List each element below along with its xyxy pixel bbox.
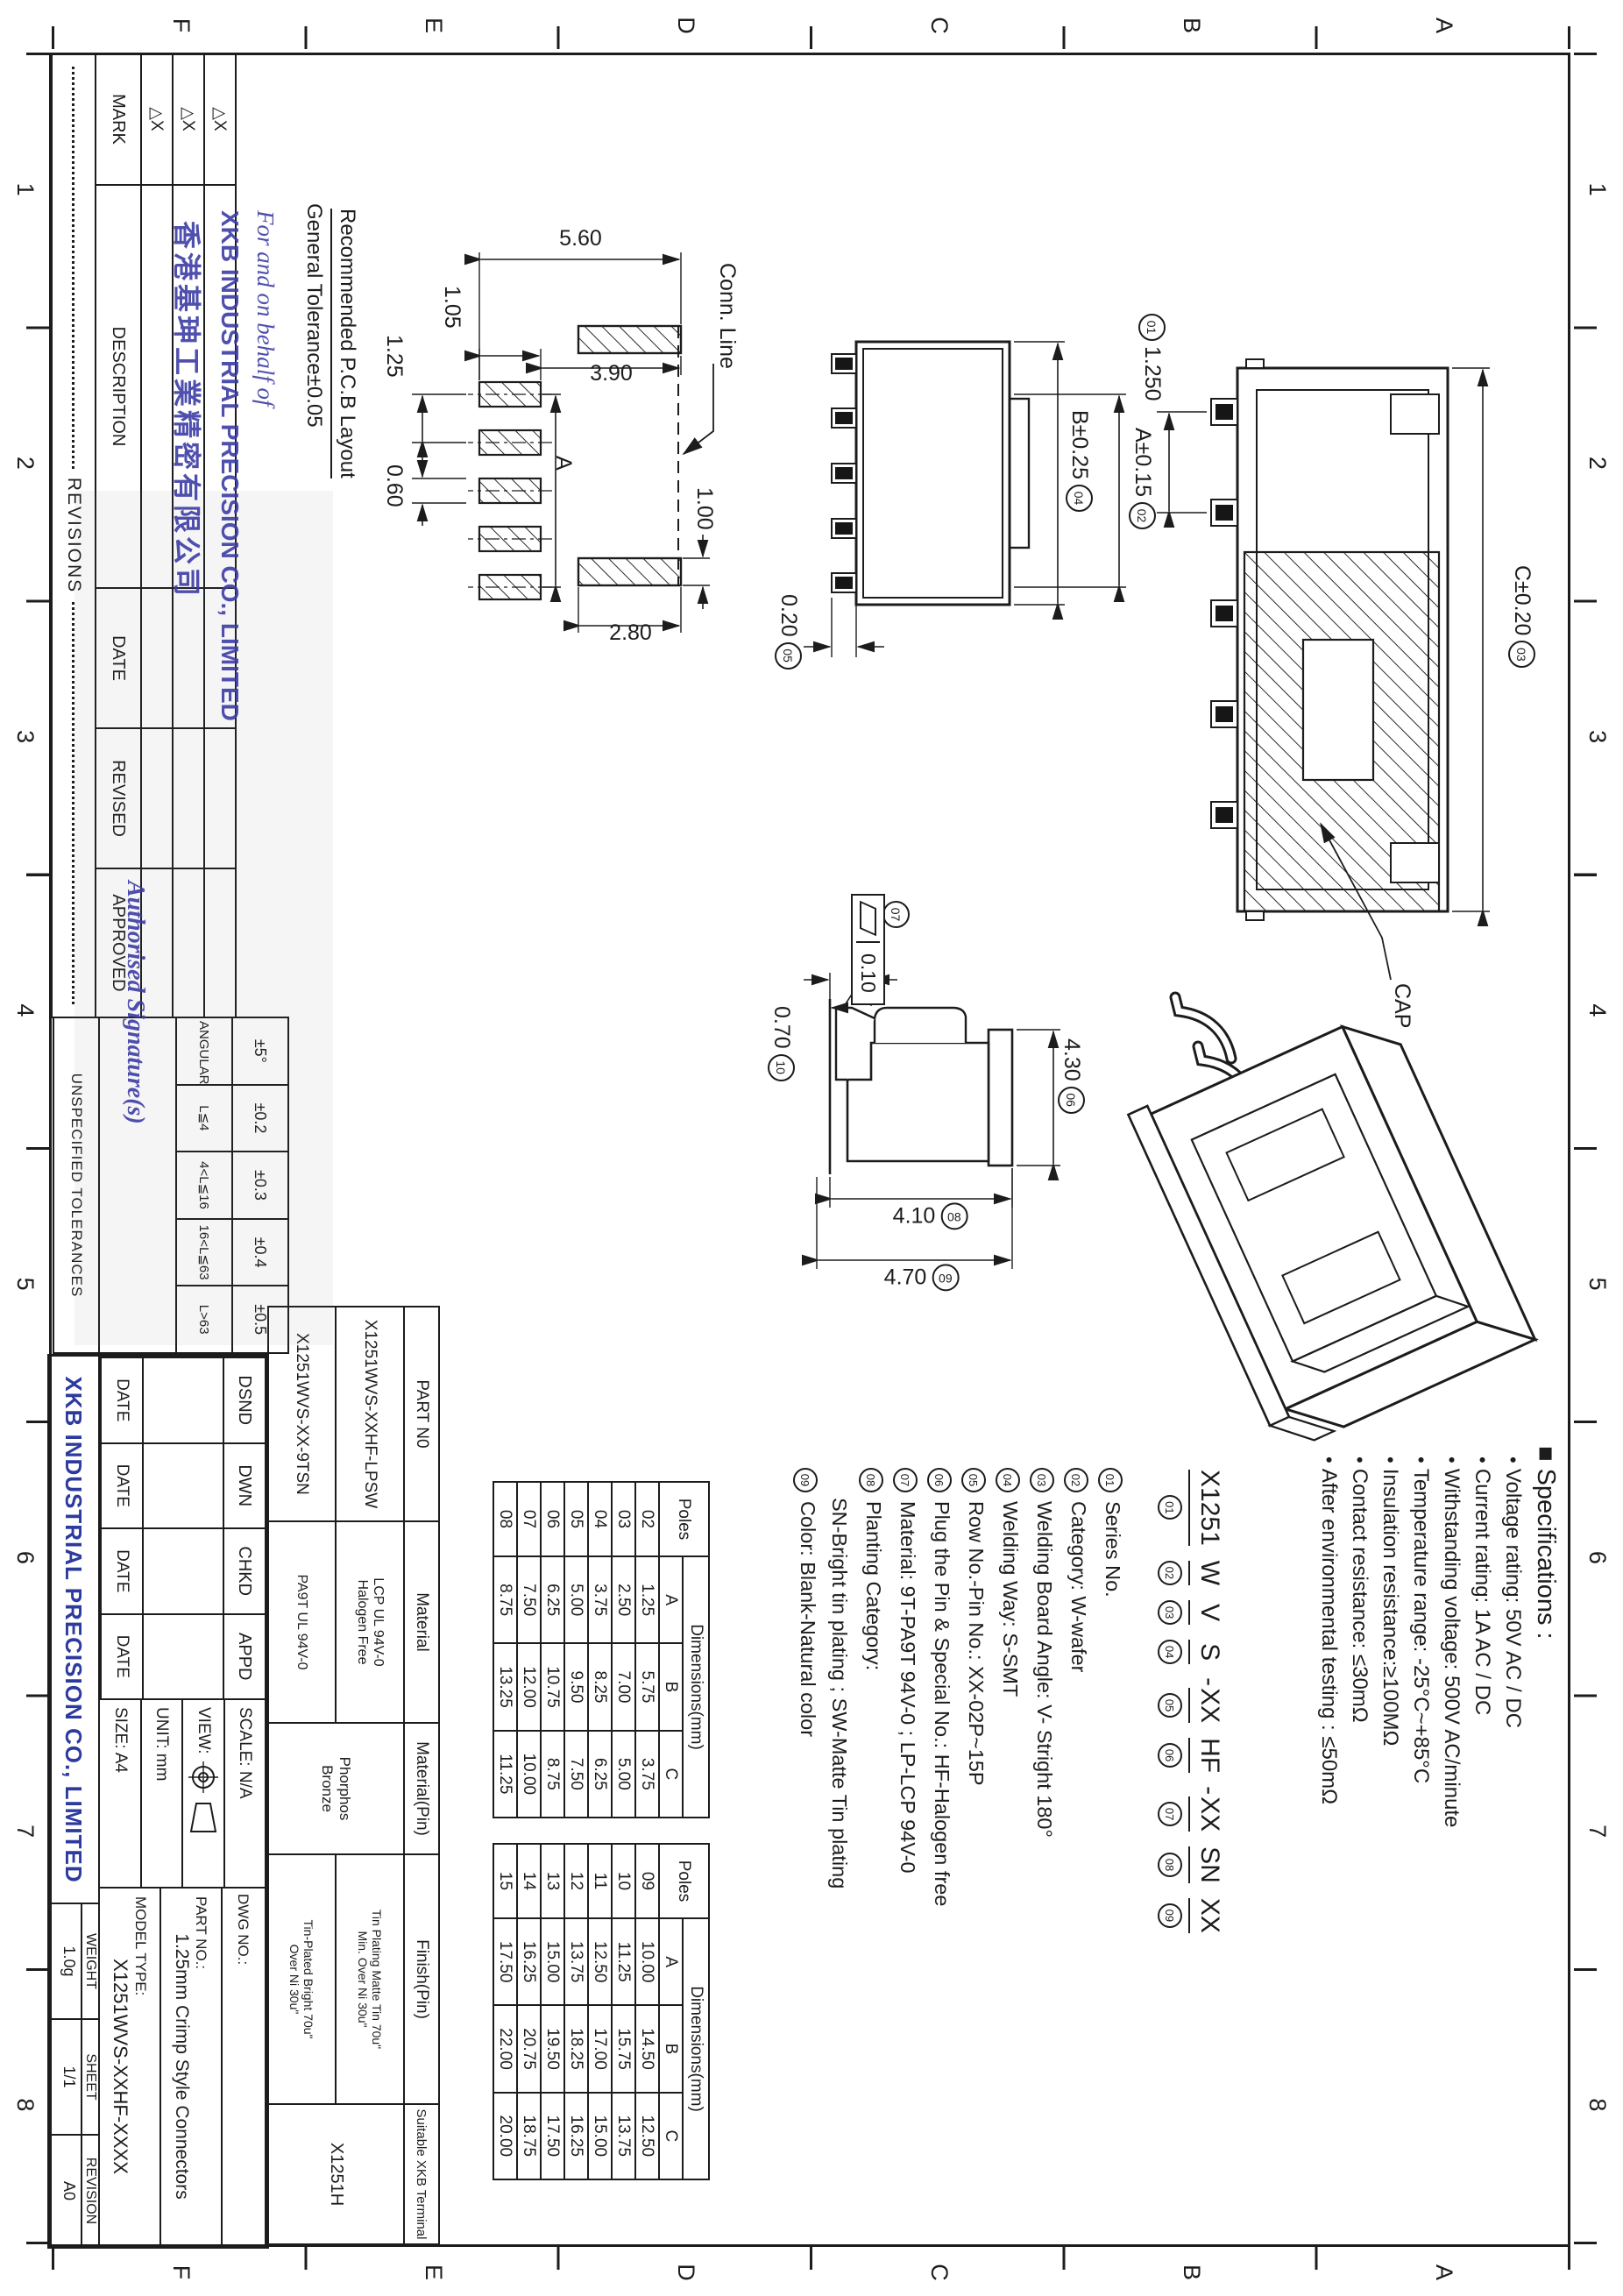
dim-A: A — [550, 456, 576, 471]
drawing-sheet: 12345678 12345678 ABCDEF ABCDEF — [0, 0, 1623, 2296]
table-row: 021.25 5.753.75 — [635, 1482, 659, 1818]
poles-header: Poles — [659, 1844, 709, 1918]
dim-col-header: B — [659, 2005, 683, 2092]
model-type-value: X1251WVS-XXHF-XXXX — [109, 1891, 131, 2242]
signature-block: DSND DWN CHKD APPD DATE DATE DATE DATE — [100, 1357, 266, 1700]
note-item: 02 Category: W-wafer — [1064, 1468, 1090, 2239]
view-label: VIEW: — [195, 1707, 213, 1754]
dim-col-header: A — [659, 1556, 683, 1643]
table-row: 1315.00 19.5017.50 — [541, 1844, 564, 2179]
zone-label: 6 — [11, 1421, 40, 1694]
order-code-segment: XX 09 — [1158, 1896, 1224, 1933]
zone-label: 4 — [1583, 874, 1612, 1147]
date-cell: DATE — [101, 1357, 143, 1443]
chkd-cell: CHKD — [223, 1528, 266, 1614]
terminal-value: X1251H — [268, 2104, 404, 2244]
dim-105: 1.05 — [439, 286, 464, 329]
table-row: 032.50 7.005.00 — [612, 1482, 635, 1818]
note-item: 05 Row No.-Pin No.: XX-02P~15P — [961, 1468, 988, 2239]
table-row: 043.75 8.256.25 — [588, 1482, 612, 1818]
spec-item: Contact resistance: ≤30mΩ — [1347, 1456, 1371, 2042]
note-item: 04 Welding Way: S-SMT — [996, 1468, 1022, 2239]
order-code-segment: SN 08 — [1158, 1845, 1224, 1883]
note-balloon: 07 — [893, 1468, 918, 1492]
spec-item: Current rating: 1A AC / DC — [1470, 1456, 1494, 2042]
dim-a: A±0.15 02 — [1129, 428, 1156, 529]
stamp-line2: XKB INDUSTRIAL PRECISION CO., LIMITED — [216, 210, 244, 721]
specifications: ■ Specifications : Voltage rating: 50V A… — [1316, 1446, 1560, 2042]
order-code-segment: V 03 — [1158, 1598, 1224, 1625]
zone-numbers-top: 12345678 — [1583, 53, 1612, 2242]
note-text: Color: Blank-Natural color — [796, 1501, 819, 1737]
part-title: 1.25mm Crimp Style Connectors — [171, 1891, 192, 2242]
code-text: HF — [1194, 1738, 1224, 1773]
zone-label: 7 — [1583, 1695, 1612, 1968]
zone-label: 2 — [1583, 326, 1612, 599]
note-item: 01 Series No. — [1098, 1468, 1124, 2239]
revision-mark: △X — [204, 53, 236, 185]
scale-cell: SCALE: N/A — [224, 1699, 266, 1888]
order-code: X1251 01 W 02 V 03 S 04 - XX — [1158, 1468, 1224, 1946]
balloon-07: 07 — [882, 901, 910, 928]
appd-cell: APPD — [223, 1614, 266, 1700]
poles-header: Poles — [659, 1482, 709, 1556]
code-text: X1251 — [1194, 1470, 1224, 1546]
table-row: 1112.50 17.0015.00 — [588, 1844, 612, 2179]
zone-letters-right: ABCDEF — [54, 2257, 1570, 2287]
date-cell: DATE — [101, 1443, 143, 1529]
zone-label: E — [307, 11, 559, 40]
note-balloon: 09 — [793, 1468, 818, 1492]
title-block: DSND DWN CHKD APPD DATE DATE DATE DATE S… — [47, 1354, 269, 2249]
zone-label: 3 — [11, 600, 40, 874]
zone-label: 5 — [11, 1147, 40, 1421]
note-item: 03 Welding Board Angle: V- Stright 180° — [1030, 1468, 1056, 2239]
table-row: X1251WVS-XXHF-LPSW LCP UL 94V-0 Halogen … — [336, 1307, 404, 2244]
zone-label: D — [560, 2257, 812, 2287]
drawing-page: 12345678 12345678 ABCDEF ABCDEF — [0, 0, 1623, 2296]
spec-item: Voltage rating: 50V AC / DC — [1500, 1456, 1525, 2042]
dim-col-header: C — [659, 1731, 683, 1818]
code-text: XX — [1194, 1796, 1224, 1832]
dimensions-header: Dimensions(mm) — [683, 1918, 709, 2179]
fcf-balloon: 07 — [882, 901, 910, 928]
note-balloon: 02 — [1064, 1468, 1088, 1492]
code-balloon: 06 — [1158, 1743, 1182, 1768]
note-text: Row No.-Pin No.: XX-02P~15P — [964, 1501, 988, 1786]
revision-mark: △X — [141, 53, 173, 185]
zone-label: E — [307, 2257, 559, 2287]
code-balloon: 08 — [1158, 1853, 1182, 1877]
table-row: 088.75 13.2511.25 — [493, 1482, 517, 1818]
dim-070: 0.70 10 — [768, 1006, 795, 1081]
zone-label: F — [54, 2257, 307, 2287]
spec-item: Withstanding voltage: 500V AC/minute — [1439, 1456, 1464, 2042]
dim-col-header: C — [659, 2093, 683, 2179]
table-row: 1416.25 20.7518.75 — [517, 1844, 541, 2179]
code-text: XX — [1194, 1688, 1224, 1723]
code-balloon: 03 — [1158, 1600, 1182, 1625]
zone-label: C — [812, 2257, 1065, 2287]
terminal-header: Suitable XKB Terminal — [404, 2104, 439, 2244]
poles-table-2: Poles Dimensions(mm) ABC 0910.00 14.5012… — [493, 1843, 710, 2180]
balloon-03: 03 — [1508, 641, 1535, 668]
info-block: SCALE: N/A VIEW: UNIT: mm SIZE: A4 — [98, 1698, 266, 1889]
spec-item: Temperature range: -25°C~+85°C — [1408, 1456, 1433, 2042]
dsnd-cell: DSND — [223, 1357, 266, 1443]
model-type-label: MODEL TYPE: — [131, 1891, 151, 2242]
zone-label: 6 — [1583, 1421, 1612, 1694]
code-balloon: 01 — [1158, 1495, 1182, 1520]
pcb-pad-right — [578, 558, 681, 585]
code-balloon: 05 — [1158, 1693, 1182, 1718]
third-angle-projection-icon — [186, 1758, 221, 1839]
isometric-view — [1110, 911, 1575, 1472]
spec-item: After environmental testing : ≤50mΩ — [1316, 1456, 1341, 2042]
dim-020: 0.20 05 — [775, 594, 802, 670]
zone-label: 4 — [11, 874, 40, 1147]
balloon-04: 04 — [1066, 485, 1093, 512]
zone-label: 7 — [11, 1695, 40, 1968]
zone-label: F — [54, 11, 307, 40]
pcb-caption-line1: Recommended P.C.B Layout — [330, 209, 359, 478]
dim-390: 3.90 — [590, 361, 633, 386]
order-code-segment: - XX 07 — [1158, 1786, 1224, 1832]
code-balloon: 04 — [1158, 1640, 1182, 1664]
zone-label: 8 — [11, 1968, 40, 2242]
note-text: Series No. — [1101, 1501, 1124, 1598]
note-text: SN-Bright tin plating ; SW-Matte Tin pla… — [827, 1498, 851, 1889]
note-balloon: 05 — [961, 1468, 986, 1492]
zone-label: A — [1318, 2257, 1570, 2287]
company-name: XKB INDUSTRIAL PRECISION CO., LIMITED — [60, 1376, 87, 1882]
finish-pin-header: Finish(Pin) — [404, 1854, 439, 2104]
code-text: S — [1194, 1643, 1224, 1661]
dim-060: 0.60 — [381, 464, 407, 507]
date-cell: DATE — [101, 1528, 143, 1614]
zone-label: 8 — [1583, 1968, 1612, 2242]
stamp-backdrop — [74, 491, 333, 1345]
order-code-segment: S 04 — [1158, 1638, 1224, 1664]
note-item: 09 Color: Blank-Natural color — [793, 1468, 819, 2239]
dim-col-header: B — [659, 1643, 683, 1730]
note-text: Material: 9T-PA9T 94V-0 ; LP-LCP 94V-0 — [896, 1501, 919, 1874]
zone-label: B — [1065, 11, 1317, 40]
note-item: 08 Planting Category: — [859, 1468, 885, 2239]
dim-c: C±0.20 03 — [1508, 565, 1535, 668]
table-row: 0910.00 14.5012.50 — [635, 1844, 659, 2179]
code-text: V — [1194, 1604, 1224, 1621]
zone-letters-left: ABCDEF — [54, 11, 1570, 40]
dim-125: 1.25 — [381, 335, 407, 378]
title-block-bottom: XKB INDUSTRIAL PRECISION CO., LIMITED WE… — [48, 1357, 100, 2246]
note-balloon — [828, 1468, 849, 1489]
order-code-segment: W 02 — [1158, 1559, 1224, 1585]
note-balloon: 06 — [927, 1468, 952, 1492]
conn-line-label: Conn. Line — [714, 263, 740, 369]
part-no-label: PART NO.: — [192, 1891, 211, 2242]
order-code-notes: 01 Series No. 02 Category: W-wafer 03 We… — [793, 1468, 1132, 2239]
note-text: Welding Way: S-SMT — [998, 1501, 1022, 1697]
note-text: Category: W-wafer — [1067, 1501, 1090, 1672]
note-balloon: 04 — [996, 1468, 1020, 1492]
balloon-02: 02 — [1129, 502, 1156, 529]
part-table: PART N0 Material Material(Pin) Finish(Pi… — [267, 1306, 440, 2243]
stamp-line1: For and on behalf of — [252, 210, 279, 407]
specifications-list: Voltage rating: 50V AC / DCCurrent ratin… — [1316, 1446, 1525, 2042]
top-view-drawing — [769, 315, 1163, 692]
balloon-08: 08 — [940, 1202, 967, 1229]
table-row: 1213.75 18.2516.25 — [564, 1844, 588, 2179]
pcb-pad-left — [578, 326, 681, 353]
dim-410: 4.10 08 — [893, 1202, 968, 1229]
code-balloon: 09 — [1158, 1903, 1182, 1928]
pcb-layout-view: Conn. Line 5.60 3.90 1.05 A 1.25 0.60 1.… — [282, 202, 755, 701]
material-pin-header: Material(Pin) — [404, 1723, 439, 1854]
model-block: DWG NO.: PART NO.: 1.25mm Crimp Style Co… — [98, 1887, 266, 2246]
table-row: 055.00 9.507.50 — [564, 1482, 588, 1818]
order-code-segment: HF 06 — [1158, 1736, 1224, 1773]
poles-table-1: Poles Dimensions(mm) ABC 021.25 5.753.75… — [493, 1481, 710, 1818]
dim-430: 4.30 06 — [1058, 1038, 1085, 1114]
pcb-caption-line2: General Tolerance±0.05 — [301, 203, 326, 428]
dim-560: 5.60 — [559, 226, 602, 252]
flatness-icon — [860, 901, 876, 936]
zone-label: A — [1318, 11, 1570, 40]
company-cell: XKB INDUSTRIAL PRECISION CO., LIMITED — [48, 1357, 98, 1903]
code-separator: - — [1158, 1677, 1224, 1686]
code-balloon: 07 — [1158, 1802, 1182, 1826]
note-item: SN-Bright tin plating ; SW-Matte Tin pla… — [827, 1468, 851, 2239]
note-item: 07 Material: 9T-PA9T 94V-0 ; LP-LCP 94V-… — [893, 1468, 919, 2239]
code-text: SN — [1194, 1846, 1224, 1883]
zone-label: 1 — [1583, 53, 1612, 326]
dim-470: 4.70 09 — [884, 1264, 960, 1291]
unit-cell: UNIT: mm — [141, 1699, 182, 1888]
zone-label: B — [1065, 2257, 1317, 2287]
zone-label: 5 — [1583, 1147, 1612, 1421]
date-cell: DATE — [101, 1614, 143, 1700]
revision-cell: REVISION A0 — [48, 2134, 98, 2246]
table-row: 066.25 10.758.75 — [541, 1482, 564, 1818]
zone-label: C — [812, 11, 1065, 40]
dimensions-header: Dimensions(mm) — [683, 1556, 709, 1818]
feature-control-frame: 0.10 — [851, 894, 885, 1005]
table-row: 077.50 12.0010.00 — [517, 1482, 541, 1818]
dwn-cell: DWN — [223, 1443, 266, 1529]
note-text: Plug the Pin & Special No.: HF-Halogen f… — [930, 1501, 953, 1906]
table-row: 1517.50 22.0020.00 — [493, 1844, 517, 2179]
isometric-drawing — [1110, 911, 1575, 1472]
note-text: Welding Board Angle: V- Stright 180° — [1032, 1501, 1056, 1838]
dim-100: 1.00 — [691, 487, 717, 530]
stamp-line3: 香港基珅工業精密有限公司 — [168, 221, 209, 599]
zone-label: 1 — [11, 53, 40, 326]
note-balloon: 03 — [1030, 1468, 1054, 1492]
zone-label: 3 — [1583, 600, 1612, 874]
balloon-10: 10 — [768, 1054, 795, 1081]
note-balloon: 01 — [1098, 1468, 1123, 1492]
code-balloon: 02 — [1158, 1561, 1182, 1585]
zone-numbers-bottom: 12345678 — [11, 53, 40, 2242]
dim-b: B±0.25 04 — [1066, 410, 1093, 512]
front-pins — [1211, 399, 1237, 828]
top-view: A±0.15 02 B±0.25 04 0.20 05 — [769, 315, 1163, 692]
material-header: Material — [404, 1521, 439, 1723]
revision-mark: △X — [173, 53, 204, 185]
stamp-line4: Authorised Signature(s) — [121, 881, 149, 1124]
dwg-no-cell: DWG NO.: — [222, 1888, 266, 2245]
order-code-segment: - XX 05 — [1158, 1677, 1224, 1723]
top-pins — [832, 354, 856, 592]
part-no-header: PART N0 — [404, 1307, 439, 1521]
balloon-05: 05 — [775, 642, 802, 670]
specifications-title: ■ Specifications : — [1531, 1446, 1560, 2042]
note-text: Planting Category: — [861, 1501, 885, 1670]
zone-label: D — [560, 11, 812, 40]
zone-label: 2 — [11, 326, 40, 599]
balloon-09: 09 — [932, 1264, 959, 1291]
code-text: XX — [1194, 1898, 1224, 1933]
table-row: 1011.25 15.7513.75 — [612, 1844, 635, 2179]
size-cell: SIZE: A4 — [99, 1699, 141, 1888]
note-item: 06 Plug the Pin & Special No.: HF-Haloge… — [927, 1468, 953, 2239]
dim-280: 2.80 — [609, 620, 652, 646]
sheet-cell: SHEET 1/1 — [48, 2018, 98, 2134]
note-balloon: 08 — [859, 1468, 883, 1492]
spec-item: Insulation resistance:≥100MΩ — [1378, 1456, 1402, 2042]
order-code-segment: X1251 01 — [1158, 1468, 1224, 1546]
dim-col-header: A — [659, 1918, 683, 2005]
weight-cell: WEIGHT 1.0g — [48, 1903, 98, 2018]
balloon-06: 06 — [1058, 1087, 1085, 1114]
side-view: 4.30 06 07 0.10 4.10 08 4.70 09 0.70 10 — [729, 876, 1106, 1332]
code-separator: - — [1158, 1786, 1224, 1795]
code-text: W — [1194, 1561, 1224, 1585]
